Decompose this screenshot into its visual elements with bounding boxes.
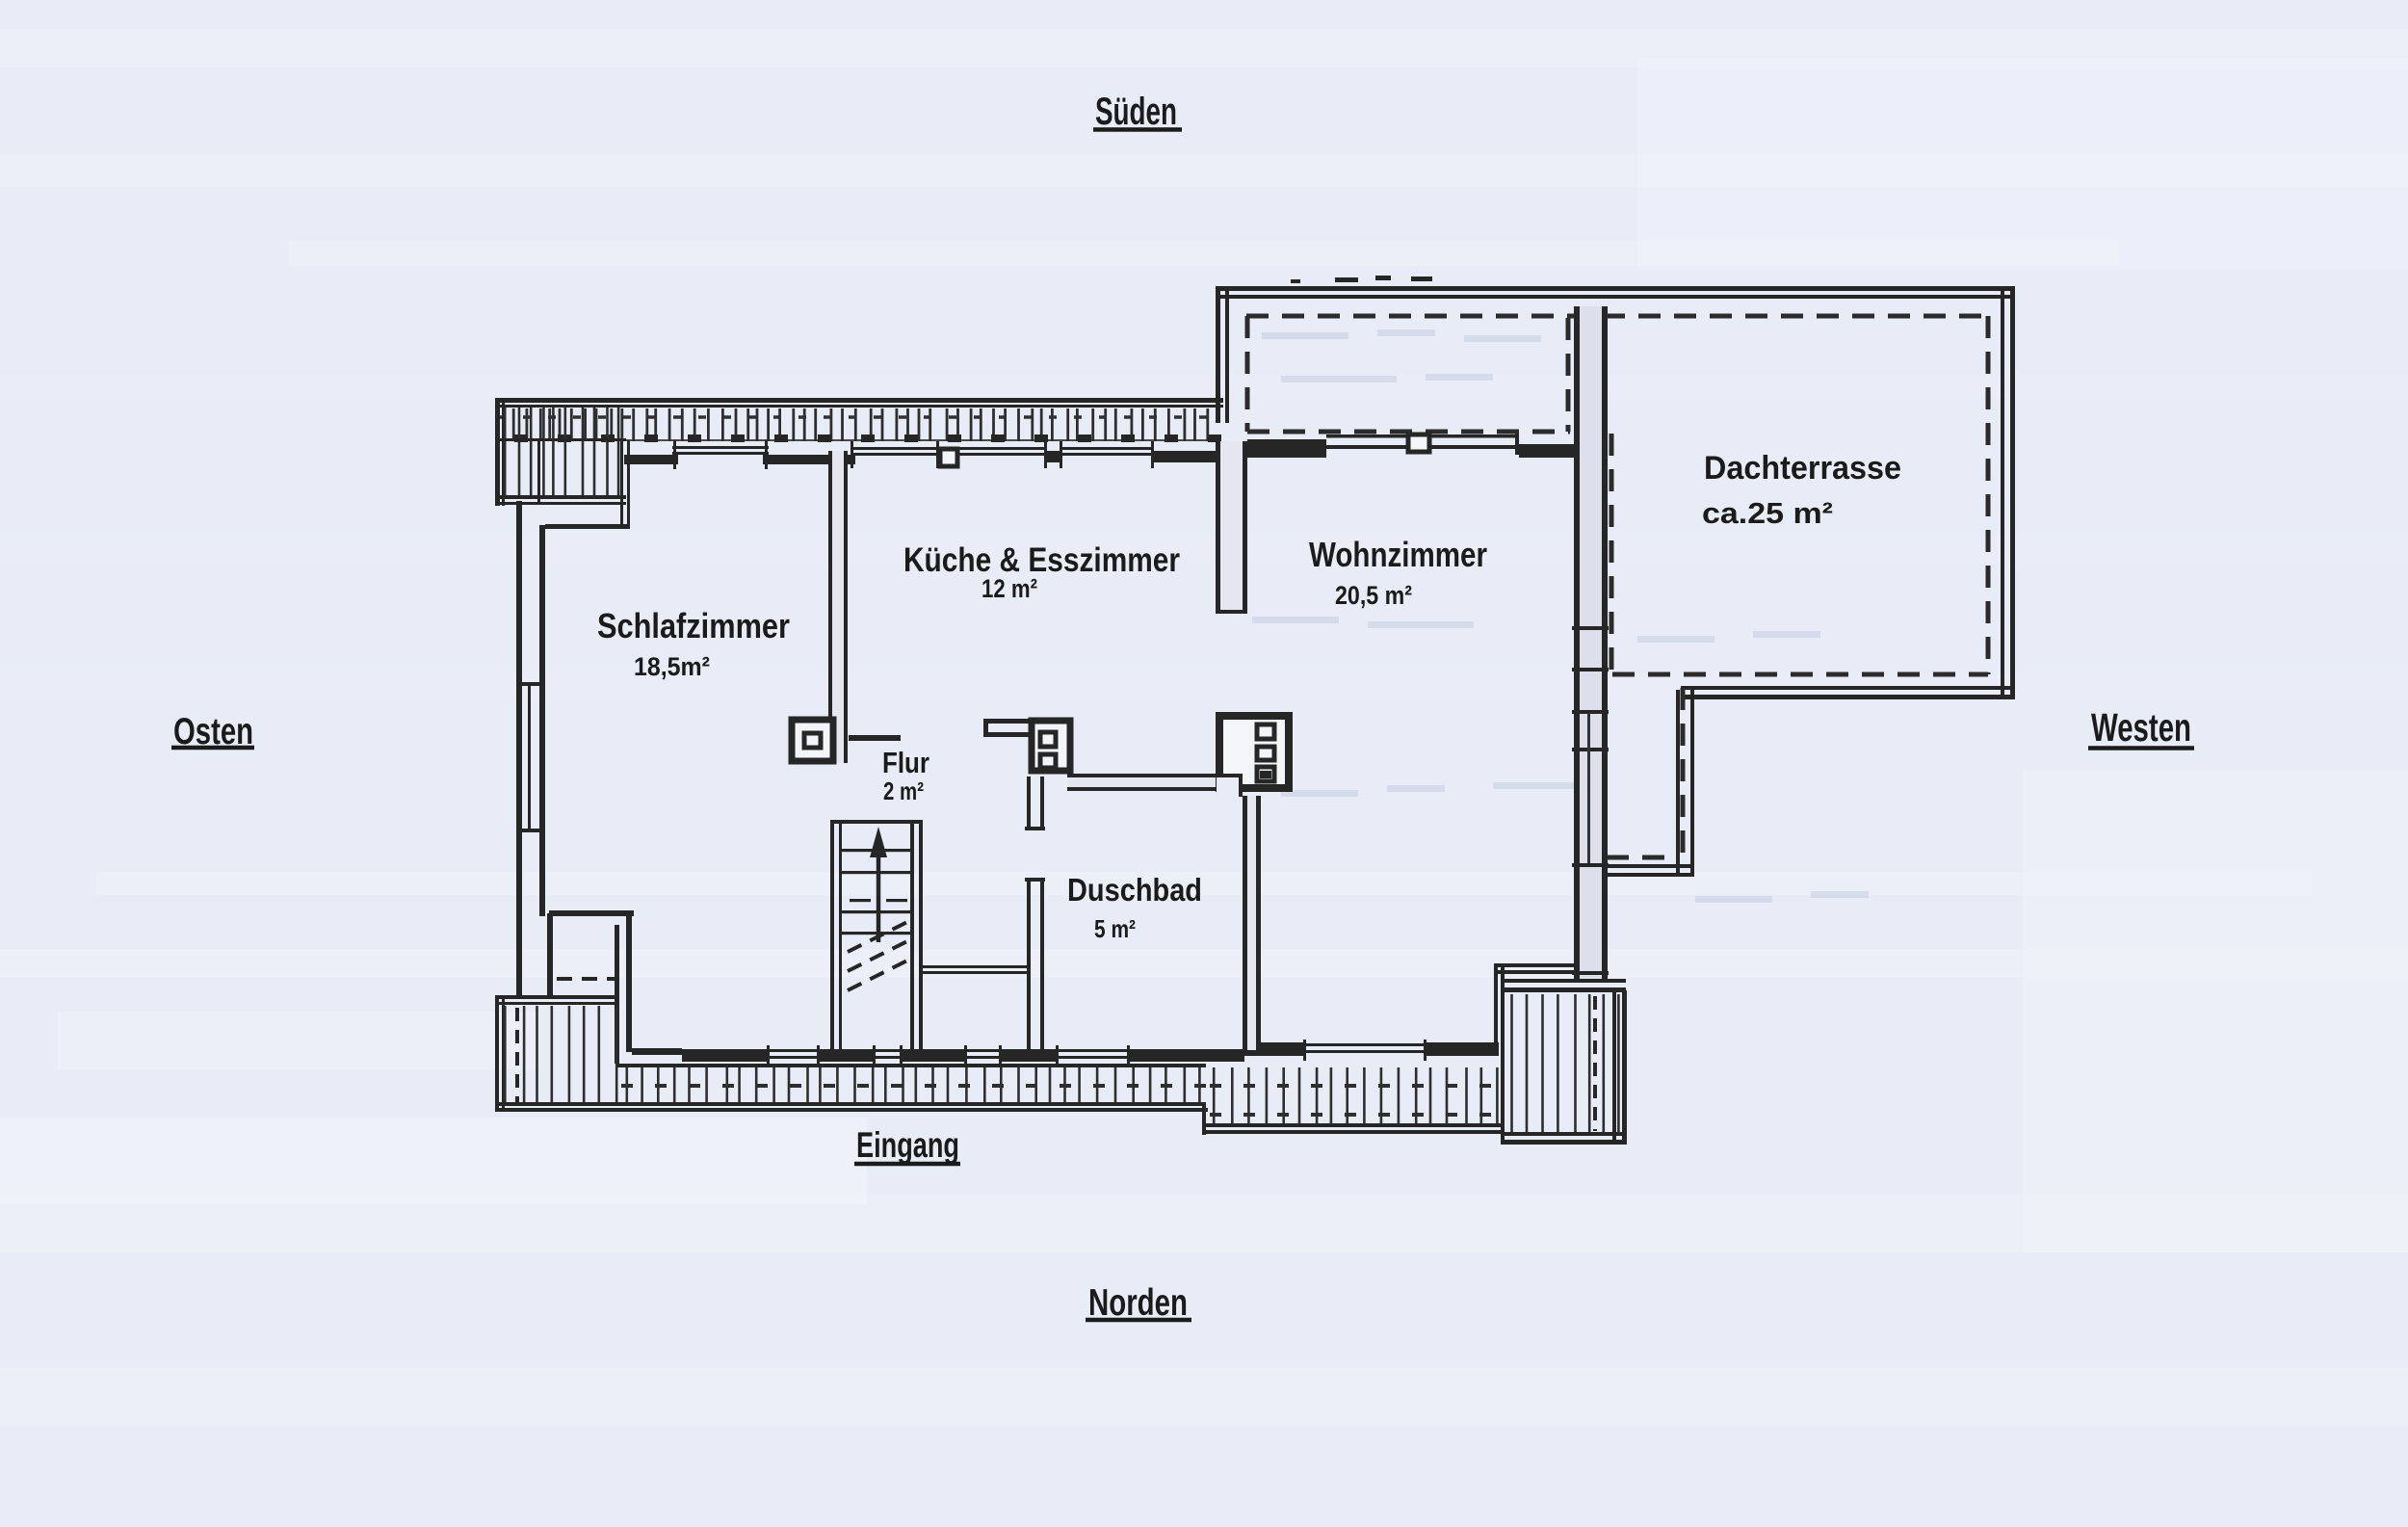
svg-text:Eingang: Eingang bbox=[856, 1125, 959, 1165]
svg-text:18,5m²: 18,5m² bbox=[634, 652, 710, 681]
svg-text:2 m²: 2 m² bbox=[883, 777, 924, 805]
svg-text:12 m²: 12 m² bbox=[982, 574, 1037, 603]
svg-text:5 m²: 5 m² bbox=[1094, 914, 1136, 943]
svg-text:ca.25 m²: ca.25 m² bbox=[1702, 496, 1833, 530]
svg-text:Süden: Süden bbox=[1095, 91, 1177, 133]
svg-text:20,5 m²: 20,5 m² bbox=[1335, 581, 1412, 610]
svg-text:Wohnzimmer: Wohnzimmer bbox=[1309, 535, 1487, 574]
svg-text:Westen: Westen bbox=[2091, 705, 2191, 750]
svg-text:Schlafzimmer: Schlafzimmer bbox=[597, 606, 790, 645]
svg-text:Dachterrasse: Dachterrasse bbox=[1704, 450, 1901, 487]
svg-text:Küche & Esszimmer: Küche & Esszimmer bbox=[903, 541, 1180, 579]
svg-text:Norden: Norden bbox=[1088, 1282, 1188, 1324]
svg-text:Flur: Flur bbox=[882, 746, 929, 779]
svg-text:Duschbad: Duschbad bbox=[1067, 872, 1202, 908]
